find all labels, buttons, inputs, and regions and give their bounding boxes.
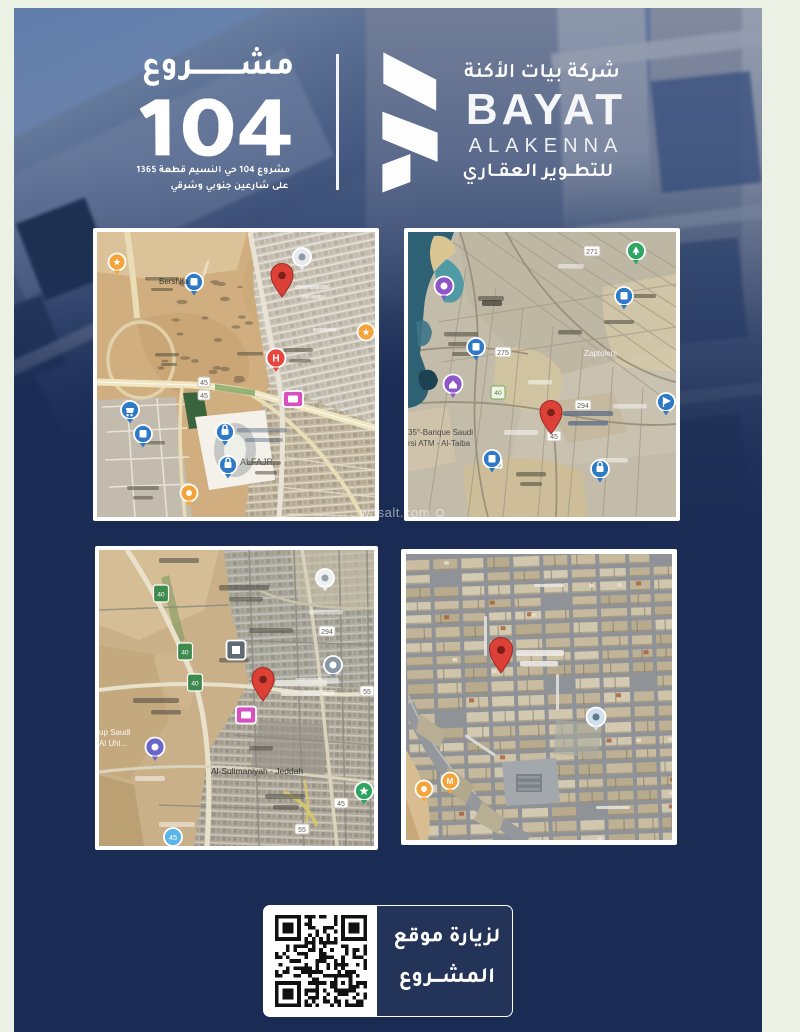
- svg-text:40: 40: [494, 390, 502, 397]
- svg-text:40: 40: [191, 681, 199, 688]
- svg-text:Zaptoleni: Zaptoleni: [584, 349, 617, 358]
- svg-text:45: 45: [200, 393, 208, 400]
- svg-text:45: 45: [169, 833, 177, 842]
- svg-text:294: 294: [577, 403, 589, 410]
- svg-text:H: H: [272, 354, 279, 365]
- svg-text:Al Uhl...: Al Uhl...: [99, 739, 127, 748]
- svg-text:40: 40: [157, 592, 165, 599]
- svg-text:ALFAJR: ALFAJR: [240, 457, 274, 467]
- svg-text:55: 55: [298, 827, 306, 834]
- svg-text:294: 294: [321, 629, 333, 636]
- svg-text:Bershka: Bershka: [159, 277, 189, 286]
- svg-text:M: M: [447, 777, 454, 786]
- svg-text:45: 45: [337, 801, 345, 808]
- svg-text:40: 40: [181, 650, 189, 657]
- svg-text:35°-Banque Saudi: 35°-Banque Saudi: [408, 428, 473, 437]
- svg-text:55: 55: [363, 689, 371, 696]
- svg-text:271: 271: [586, 249, 598, 256]
- svg-text:Al-Sulimaniyah - Jeddah: Al-Sulimaniyah - Jeddah: [211, 766, 303, 776]
- svg-text:45: 45: [200, 380, 208, 387]
- svg-text:up Saudi: up Saudi: [99, 728, 131, 737]
- svg-text:rsi ATM - Al-Taiba: rsi ATM - Al-Taiba: [408, 439, 471, 448]
- svg-text:45: 45: [550, 434, 558, 441]
- svg-text:275: 275: [497, 350, 509, 357]
